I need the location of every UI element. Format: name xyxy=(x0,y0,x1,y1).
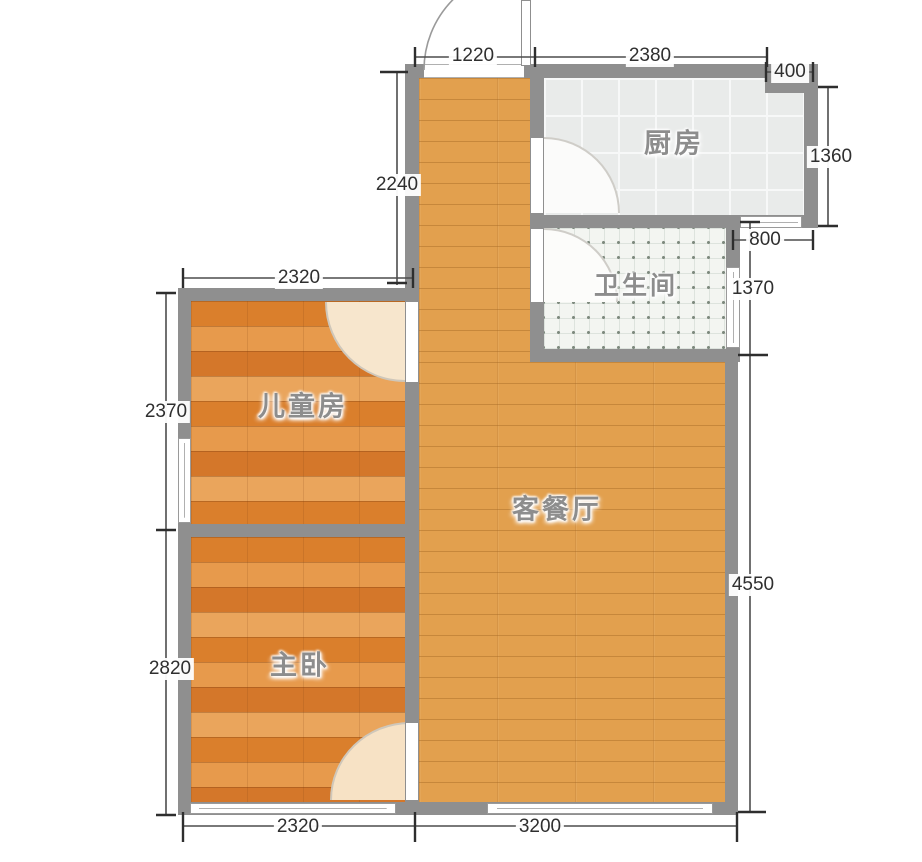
room-label-bathroom: 卫生间 xyxy=(594,266,678,302)
bathroom-door-leaf xyxy=(530,228,544,303)
dim-living-right-height: 4550 xyxy=(729,574,777,596)
floor-plan: 厨房 卫生间 客餐厅 儿童房 主卧 1220 2380 400 1360 800… xyxy=(0,0,922,862)
kids-door-leaf xyxy=(405,301,419,383)
window-kitchen-bottom xyxy=(740,216,802,228)
entry-door-leaf xyxy=(521,0,531,66)
dim-kids-height: 2370 xyxy=(142,401,190,423)
floor-hallway xyxy=(419,78,530,362)
room-label-kitchen: 厨房 xyxy=(644,122,704,161)
wall-bedroom-divider xyxy=(178,524,419,537)
room-label-kids-room: 儿童房 xyxy=(258,385,348,424)
wall-kids-top xyxy=(178,288,419,301)
wall-bathroom-bottom xyxy=(530,349,740,362)
dim-kitchen-width: 2380 xyxy=(626,45,674,67)
dim-kitchen-corner: 400 xyxy=(771,61,809,83)
dim-kids-width-top: 2320 xyxy=(275,267,323,289)
room-label-master-bedroom: 主卧 xyxy=(270,644,330,683)
dim-kitchen-overhang: 800 xyxy=(746,229,784,251)
window-kids-left xyxy=(178,438,191,523)
kitchen-door-leaf xyxy=(530,137,544,214)
wall-left-exterior xyxy=(178,288,191,815)
dim-bathroom-depth: 1370 xyxy=(729,278,777,300)
window-living-bottom xyxy=(487,803,713,814)
window-master-bottom xyxy=(190,803,396,814)
dim-hall-left-height: 2240 xyxy=(373,174,421,196)
dim-master-height: 2820 xyxy=(146,658,194,680)
floor-living-dining xyxy=(419,362,725,802)
dim-kitchen-depth: 1360 xyxy=(807,146,855,168)
master-door-leaf xyxy=(405,722,419,801)
dim-entry-width: 1220 xyxy=(449,45,497,67)
dim-master-width-bottom: 2320 xyxy=(274,816,322,838)
dim-living-width-bottom: 3200 xyxy=(516,816,564,838)
room-label-living-dining: 客餐厅 xyxy=(512,488,602,527)
